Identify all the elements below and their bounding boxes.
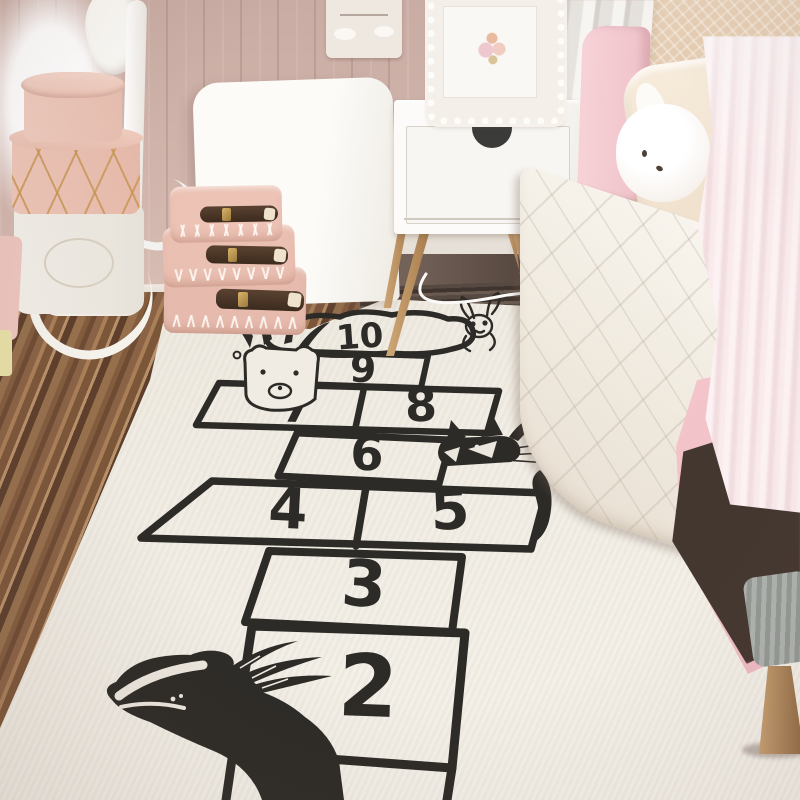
bedroom-photo: 10 9 7 8 6 4 5 3 2 <box>0 0 800 800</box>
hatbox-label <box>44 238 114 288</box>
plaque-text-line <box>340 14 388 16</box>
wall-plaque <box>326 0 402 58</box>
suitcase-buckle <box>222 208 231 221</box>
suitcase-strap-tip <box>273 248 286 262</box>
plaque-cloud-shape <box>374 26 394 37</box>
suitcase-strap-tip <box>287 292 302 308</box>
suitcase-buckle <box>228 248 237 262</box>
bunny-plush-eye <box>642 150 647 157</box>
frame-artwork-flower <box>470 22 514 76</box>
bunny-plush <box>616 104 710 202</box>
yellow-fabric-edge <box>0 330 12 376</box>
plaque-cloud-shape <box>334 28 356 40</box>
hatbox-lid <box>21 72 125 98</box>
suitcase-strap-tip <box>263 208 275 221</box>
suitcase-buckle <box>238 292 248 307</box>
